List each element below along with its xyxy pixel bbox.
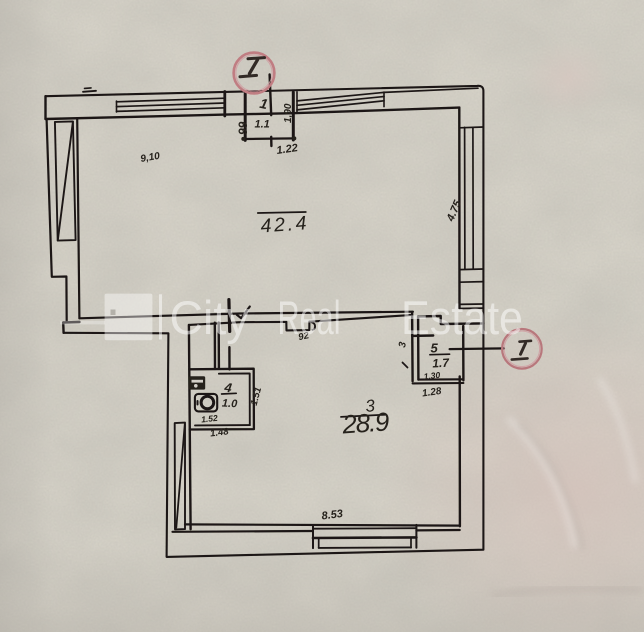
svg-text:1.48: 1.48 — [209, 426, 229, 439]
svg-text:1.0: 1.0 — [222, 398, 239, 411]
svg-text:28.9: 28.9 — [340, 406, 390, 439]
svg-text:Estate: Estate — [401, 291, 523, 344]
svg-text:99: 99 — [236, 121, 250, 135]
svg-text:1.7: 1.7 — [432, 356, 451, 371]
svg-text:1,90: 1,90 — [283, 103, 294, 123]
svg-text:1.30: 1.30 — [423, 370, 441, 382]
svg-text:City: City — [170, 291, 250, 344]
svg-text:Real: Real — [278, 291, 341, 344]
svg-text:1.52: 1.52 — [201, 413, 219, 425]
svg-text:1.1: 1.1 — [255, 119, 270, 131]
svg-text:42.4: 42.4 — [260, 212, 308, 237]
